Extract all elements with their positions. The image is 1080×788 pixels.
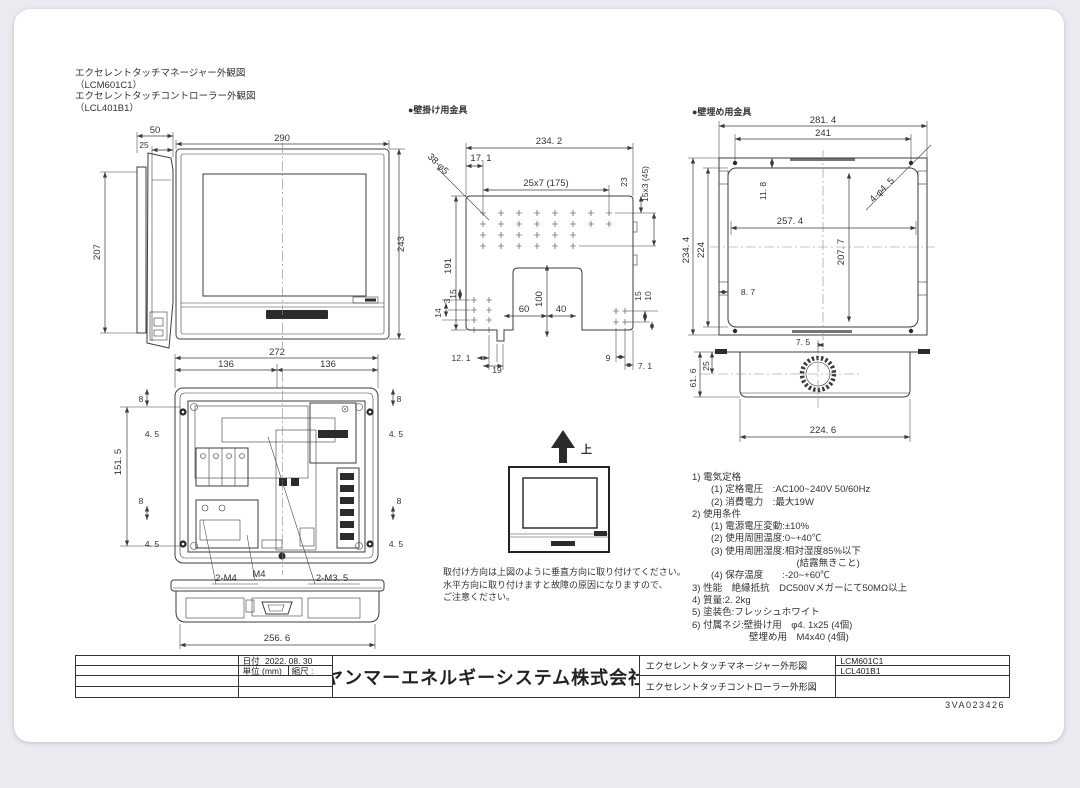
dim-rear-8a: 8 [139, 394, 144, 404]
dim-embed-mid-height: 207. 7 [836, 239, 847, 265]
spec-line: (1) 電源電圧変動:±10% [692, 521, 907, 533]
dim-rear-right: 136 [320, 359, 336, 370]
dim-emside-25: 25 [701, 361, 711, 371]
dim-rear-8b: 8 [397, 394, 402, 404]
dim-embed-height: 234. 4 [681, 237, 692, 263]
dim-emside-height: 61. 6 [688, 368, 698, 387]
dim-rear-8c: 8 [139, 496, 144, 506]
dim-bracket-40: 40 [556, 304, 567, 315]
header-code-1: （LCM601C1） [75, 80, 256, 92]
note-line-3: ご注意ください。 [443, 591, 686, 604]
rear-view-drawing: 272 136 136 151. 5 8 4. 5 8 4. 5 8 4. 5 … [113, 347, 403, 584]
spec-line: 3) 性能 絶縁抵抗 DC500Vメガーにて50MΩ以上 [692, 583, 907, 595]
label-2-m35: 2-M3. 5 [316, 573, 348, 584]
spec-line: (2) 消費電力 :最大19W [692, 497, 907, 509]
specifications-list: 1) 電気定格 (1) 定格電圧 :AC100~240V 50/60Hz (2)… [692, 472, 907, 644]
spec-line: (結露無きこと) [692, 558, 907, 570]
dim-bracket-15: 15 [448, 289, 458, 299]
dim-bracket-height: 191 [443, 258, 454, 274]
title-block-meta-col: 日付 2022. 08. 30 単位 (mm) 縮尺 : [239, 656, 334, 697]
dim-bottom-width: 256. 6 [264, 633, 290, 644]
spec-line: (3) 使用周囲湿度:相対湿度85%以下 [692, 546, 907, 558]
dim-bracket-vpitch: 15x3 (45) [640, 166, 650, 202]
orientation-figure: 上 [509, 430, 609, 552]
dim-embed-inner-width: 241 [815, 128, 831, 139]
model-number-2: LCL401B1 [836, 666, 1009, 676]
note-line-2: 水平方向に取り付けますと故障の原因になりますので、 [443, 579, 686, 592]
date-row: 日付 2022. 08. 30 [239, 656, 333, 666]
wall-mount-label: ●壁掛け用金具 [408, 103, 467, 116]
label-2-m4: 2-M4 [215, 573, 237, 584]
dim-rear-45d: 4. 5 [389, 539, 403, 549]
dim-embed-75: 7. 5 [796, 337, 810, 347]
up-arrow-icon [551, 430, 575, 463]
model-number-1: LCM601C1 [836, 656, 1009, 666]
bottom-view-drawing: 256. 6 [171, 580, 384, 649]
dim-bracket-121: 12. 1 [452, 353, 471, 363]
title-block: 日付 2022. 08. 30 単位 (mm) 縮尺 : ヤンマーエネルギーシス… [75, 655, 1010, 698]
dim-bracket-60: 60 [519, 304, 530, 315]
scanned-drawing-page: 50 25 207 290 243 [0, 0, 1080, 788]
dim-rear-45b: 4. 5 [389, 429, 403, 439]
dim-rear-8d: 8 [397, 496, 402, 506]
side-view-drawing: 50 25 207 [92, 125, 173, 348]
dim-emside-width: 224. 6 [810, 425, 836, 436]
dim-bracket-71: 7. 1 [638, 361, 652, 371]
spec-line: 1) 電気定格 [692, 472, 907, 484]
note-line-1: 取付け方向は上図のように垂直方向に取り付けてください。 [443, 566, 686, 579]
model-number-col: LCM601C1 LCL401B1 [836, 656, 1009, 697]
dim-embed-mid-width: 257. 4 [777, 216, 803, 227]
header-code-2: （LCL401B1） [75, 103, 256, 115]
dim-bracket-23: 23 [619, 177, 629, 187]
drawing-title-2: エクセレントタッチコントローラー外形図 [640, 676, 836, 696]
drawing-title-1: エクセレントタッチマネージャー外形図 [640, 656, 836, 676]
dim-side-bezel: 25 [139, 140, 149, 150]
dim-bracket-15r: 15 [633, 291, 643, 301]
spec-line: 2) 使用条件 [692, 509, 907, 521]
mounting-note: 取付け方向は上図のように垂直方向に取り付けてください。 水平方向に取り付けますと… [443, 566, 686, 604]
drawing-header: エクセレントタッチマネージャー外観図 （LCM601C1） エクセレントタッチコ… [75, 68, 256, 114]
dim-bracket-19: 19 [492, 365, 502, 375]
dim-bracket-holes: 38-φ5 [425, 151, 451, 177]
scale-label: 縮尺 : [289, 666, 314, 675]
date-label: 日付 [243, 656, 260, 666]
wall-embed-bracket-drawing: 281. 4 241 234. 4 224 11. 8 257. 4 207. … [681, 115, 935, 352]
title-block-empty-col [76, 656, 239, 697]
spec-line: (4) 保存温度 :-20~+60℃ [692, 570, 907, 582]
dim-side-height: 207 [92, 244, 103, 260]
label-m4: M4 [252, 569, 265, 580]
date-value: 2022. 08. 30 [265, 656, 312, 666]
dim-bracket-10r: 10 [643, 291, 653, 301]
dim-bracket-14: 14 [433, 308, 443, 318]
dim-rear-45c: 4. 5 [145, 539, 159, 549]
dim-embed-width: 281. 4 [810, 115, 836, 126]
spec-line: (1) 定格電圧 :AC100~240V 50/60Hz [692, 484, 907, 496]
dim-side-depth: 50 [150, 125, 161, 136]
dim-embed-inner-height: 224 [696, 242, 707, 258]
company-name: ヤンマーエネルギーシステム株式会社 [333, 656, 639, 697]
wall-mount-bracket-drawing: 234. 2 17. 1 25x7 (175) 23 15x3 (45) 38-… [425, 136, 658, 375]
spec-line: 4) 質量:2. 2kg [692, 595, 907, 607]
dim-rear-left: 136 [218, 359, 234, 370]
drawing-title-col: エクセレントタッチマネージャー外形図 エクセレントタッチコントローラー外形図 [640, 656, 837, 697]
dim-front-height: 243 [396, 236, 407, 252]
wall-embed-label: ●壁埋め用金具 [692, 105, 751, 118]
dim-front-width: 290 [274, 133, 290, 144]
spec-line: 壁埋め用 M4x40 (4個) [692, 632, 907, 644]
dim-rear-width: 272 [269, 347, 285, 358]
dim-bracket-width: 234. 2 [536, 136, 562, 147]
dim-bracket-100: 100 [534, 291, 545, 307]
embed-side-view-drawing: 61. 6 25 224. 6 [688, 344, 930, 442]
spec-line: 6) 付属ネジ:壁掛け用 φ4. 1x25 (4個) [692, 620, 907, 632]
dim-bracket-offset: 17. 1 [470, 153, 491, 164]
spec-line: 5) 塗装色:フレッシュホワイト [692, 607, 907, 619]
front-view-drawing: 290 243 [176, 133, 407, 348]
unit-scale-row: 単位 (mm) 縮尺 : [239, 666, 333, 676]
dim-embed-118: 11. 8 [758, 182, 768, 201]
document-number: 3VA023426 [855, 700, 1005, 710]
header-title-1: エクセレントタッチマネージャー外観図 [75, 68, 256, 80]
dim-bracket-pitch: 25x7 (175) [523, 178, 568, 189]
dim-rear-height: 151. 5 [113, 449, 124, 475]
unit-label: 単位 (mm) [239, 666, 289, 675]
spec-line: (2) 使用周囲温度:0~+40℃ [692, 533, 907, 545]
up-label: 上 [581, 442, 592, 456]
dim-bracket-9: 9 [606, 353, 611, 363]
dim-bracket-3: 3 [442, 298, 452, 303]
dim-rear-45a: 4. 5 [145, 429, 159, 439]
dim-embed-87: 8. 7 [741, 287, 755, 297]
dim-embed-holes: 4-φ4. 5 [868, 176, 897, 205]
header-title-2: エクセレントタッチコントローラー外観図 [75, 91, 256, 103]
